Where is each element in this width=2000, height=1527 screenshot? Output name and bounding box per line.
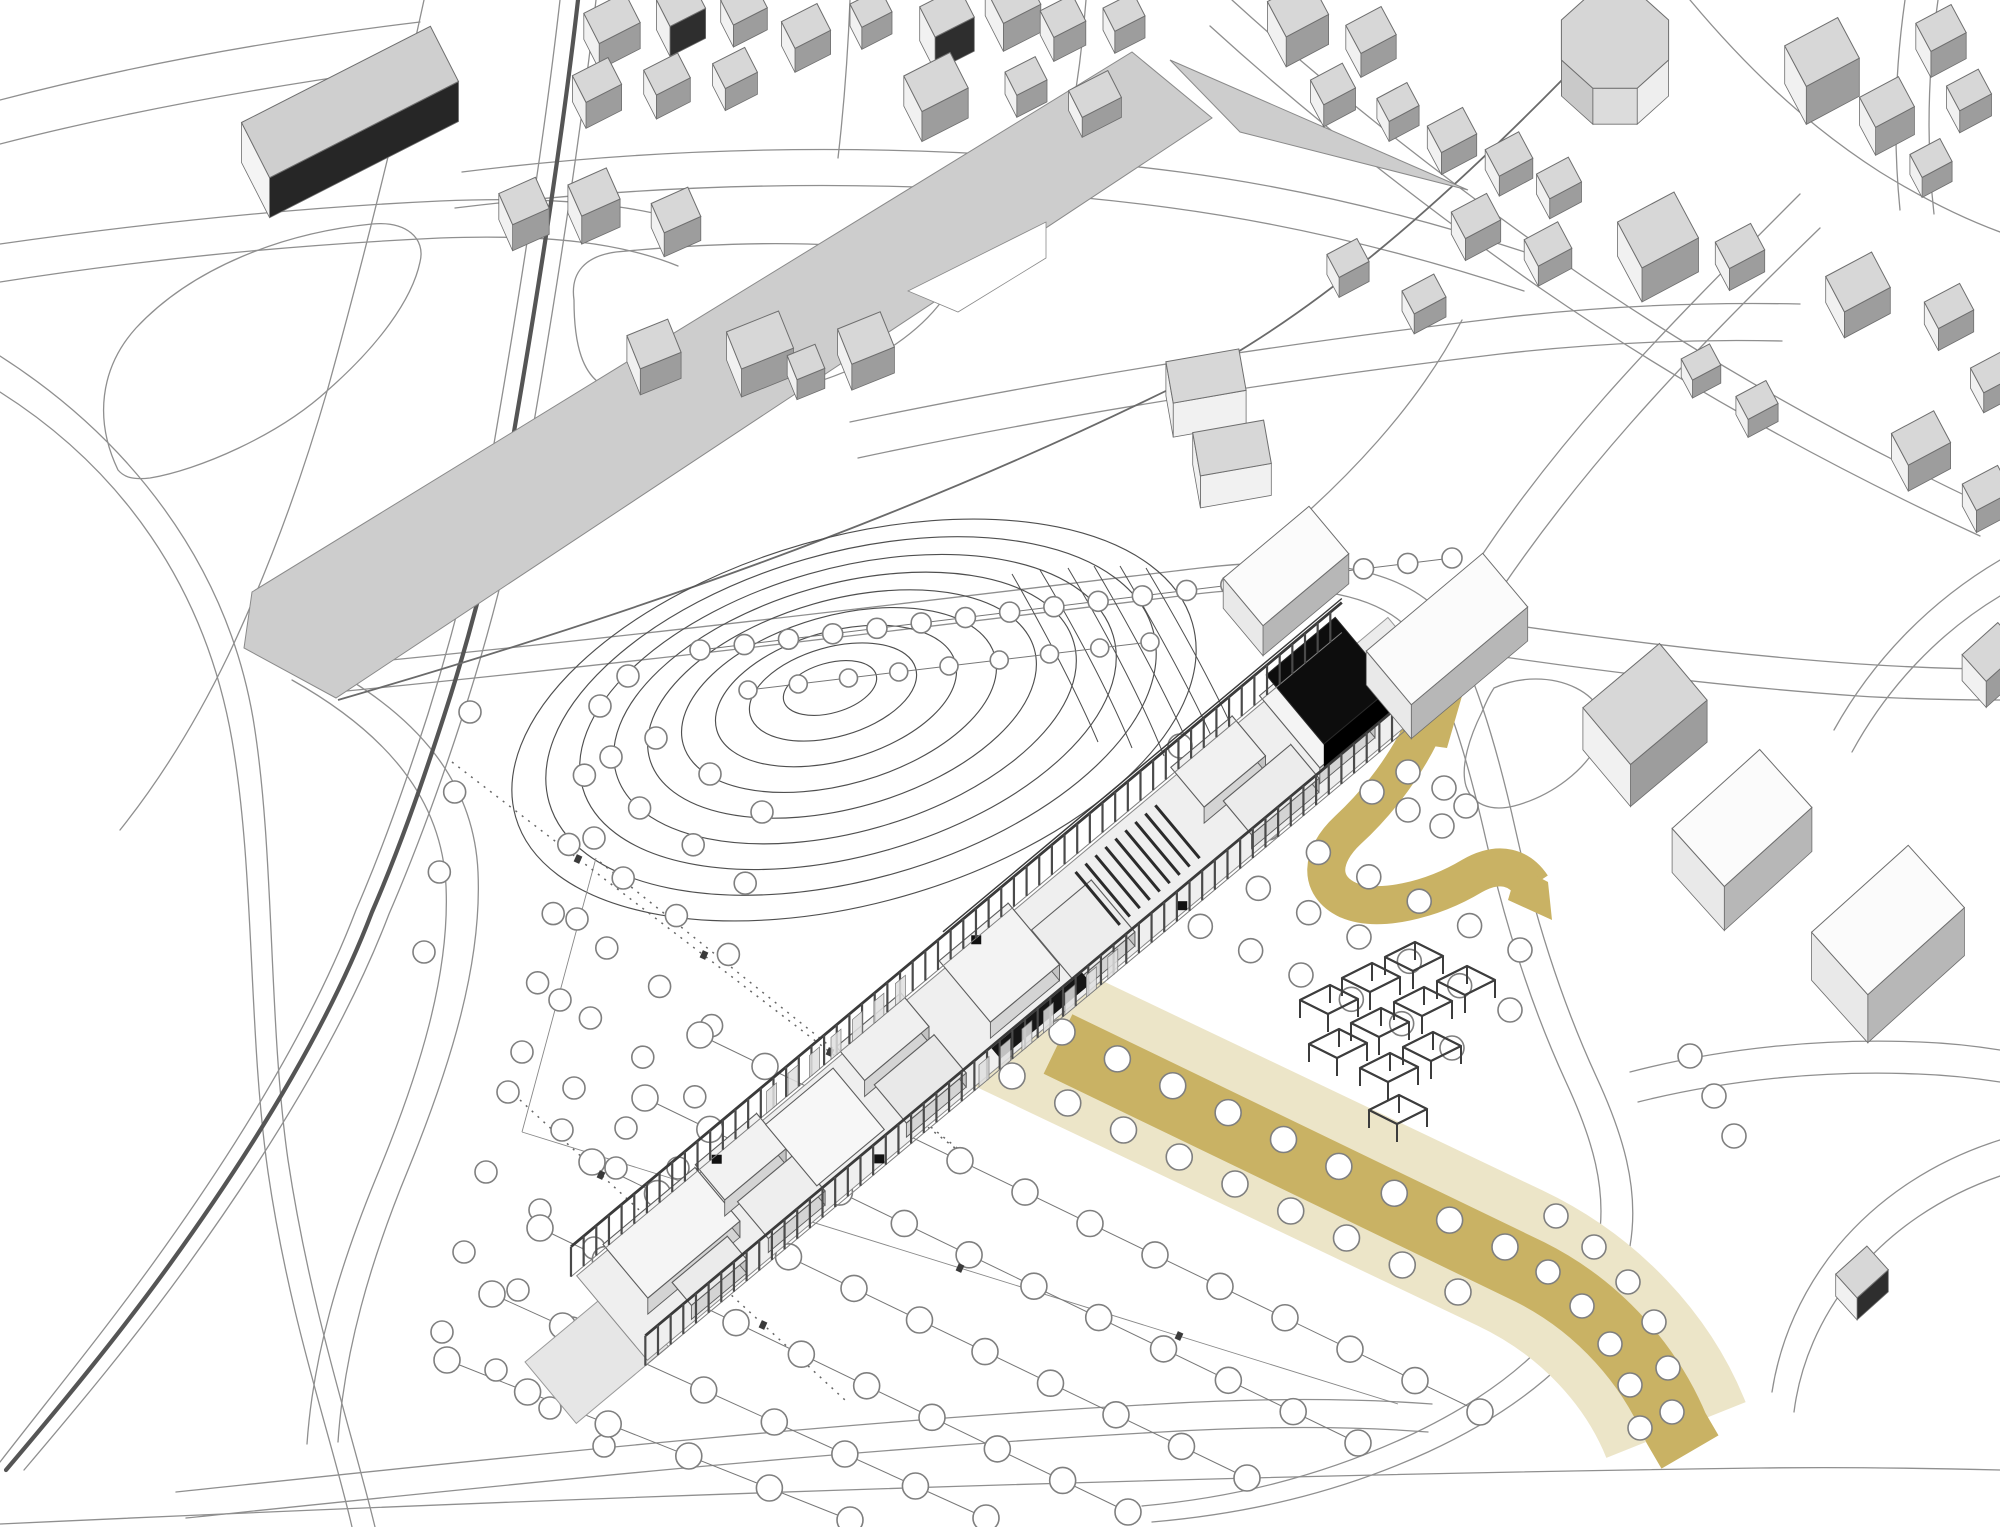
- canal-dark-line: [6, 0, 578, 1470]
- octagon-building: [1561, 0, 1668, 124]
- linear-building: [525, 599, 1433, 1424]
- site-axonometric-rendering: [0, 0, 2000, 1527]
- site-plan-stage: [0, 0, 2000, 1527]
